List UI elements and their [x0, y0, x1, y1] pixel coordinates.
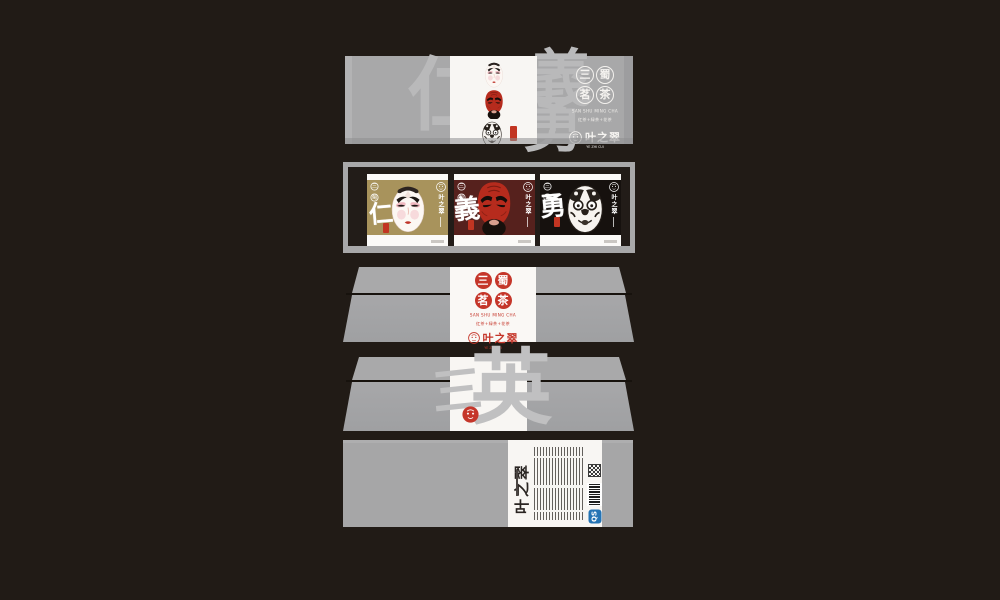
opera-mask-white-icon	[479, 59, 509, 89]
brand-logo-sub: YE ZHI CUI	[484, 346, 502, 350]
red-seal-stamp	[554, 217, 560, 227]
brand-logo-text: 叶之翠	[483, 330, 519, 346]
lid-edge-shadow	[345, 138, 633, 144]
red-seal-stamp	[468, 220, 474, 230]
tea-card-yong: 三 蜀 勇 叶之翠	[540, 174, 621, 246]
vertical-text-mark	[613, 217, 614, 227]
brand-logo-icon	[468, 332, 480, 344]
card-brand-column: 叶之翠	[521, 182, 534, 227]
series-emblem-circle: 茗	[576, 86, 594, 104]
series-emblem-circle: 茗	[475, 292, 492, 309]
card-footer-text	[431, 240, 444, 243]
vertical-text-mark	[440, 217, 441, 227]
card-band-black: 三 蜀 勇 叶之翠	[540, 180, 621, 235]
brand-logo-vertical: 叶之翠	[436, 194, 445, 215]
series-emblems: 三 蜀 茗 茶	[576, 66, 614, 104]
card-brand-column: 叶之翠	[434, 182, 447, 227]
lid-label-strip	[450, 56, 537, 144]
series-emblem-circle: 茶	[495, 292, 512, 309]
red-seal-icon	[462, 406, 479, 423]
series-types: 红茶+绿茶+花茶	[578, 116, 612, 122]
opera-mask-red-icon	[479, 89, 509, 119]
red-seal-stamp	[383, 223, 389, 233]
card-band-gold: 三 蜀 仁 叶之翠	[367, 180, 448, 235]
card-footer-text	[518, 240, 531, 243]
tea-card-ren: 三 蜀 仁 叶之翠	[367, 174, 448, 246]
brand-logo-icon	[609, 182, 619, 192]
side-a-label: 三 蜀 茗 茶 SAN SHU MING CHA 红茶+绿茶+花茶 叶之翠 YE…	[450, 267, 536, 342]
brand-logo-icon	[436, 182, 446, 192]
packaging-mockup-canvas: 仁 義 勇 三 蜀 茗 茶 SAN SHU MING CHA 红茶+绿茶+花茶 …	[0, 0, 1000, 600]
brand-logo-icon	[523, 182, 533, 192]
card-brand-column: 叶之翠	[607, 182, 620, 227]
brand-logo-sub: YE ZHI CUI	[586, 145, 604, 149]
tea-card-yi: 三 蜀 義 叶之翠	[454, 174, 535, 246]
datamatrix-code	[588, 464, 601, 477]
series-emblem-circle: 三	[543, 182, 551, 190]
series-emblem-circle: 蜀	[495, 272, 512, 289]
series-emblem-circle: 茶	[596, 86, 614, 104]
card-band-maroon: 三 蜀 義 叶之翠	[454, 180, 535, 235]
series-emblem-circle: 三	[576, 66, 594, 84]
product-info-fineprint	[534, 447, 584, 520]
vertical-text-mark	[527, 217, 528, 227]
qs-certification-icon: QS	[589, 510, 602, 524]
opera-mask-black-icon	[562, 180, 608, 235]
series-emblem-circle: 三	[457, 182, 465, 190]
series-emblem-circle: 蜀	[596, 66, 614, 84]
logo-divider	[516, 470, 518, 496]
card-footer-text	[604, 240, 617, 243]
brand-logo-vertical: 叶之翠	[609, 194, 618, 215]
brand-logo-vertical: 叶之翠	[523, 194, 532, 215]
bottom-info-label: 叶之翠 QS	[508, 440, 602, 527]
brand-logo-rotated: 叶之翠	[511, 463, 532, 514]
series-emblem-circle: 三	[370, 182, 378, 190]
series-emblems-red: 三 蜀 茗 茶	[475, 272, 512, 309]
series-emblem-circle: 三	[475, 272, 492, 289]
card-emblems: 三 蜀	[370, 182, 379, 202]
barcode	[587, 483, 602, 506]
panel-lid-top: 仁 義 勇 三 蜀 茗 茶 SAN SHU MING CHA 红茶+绿茶+花茶 …	[345, 56, 633, 144]
series-types: 红茶+绿茶+花茶	[476, 320, 510, 326]
panel-box-bottom: 叶之翠 QS	[343, 440, 633, 527]
series-pinyin: SAN SHU MING CHA	[572, 109, 618, 114]
virtue-character: 仁	[368, 201, 394, 227]
series-pinyin: SAN SHU MING CHA	[470, 313, 516, 318]
